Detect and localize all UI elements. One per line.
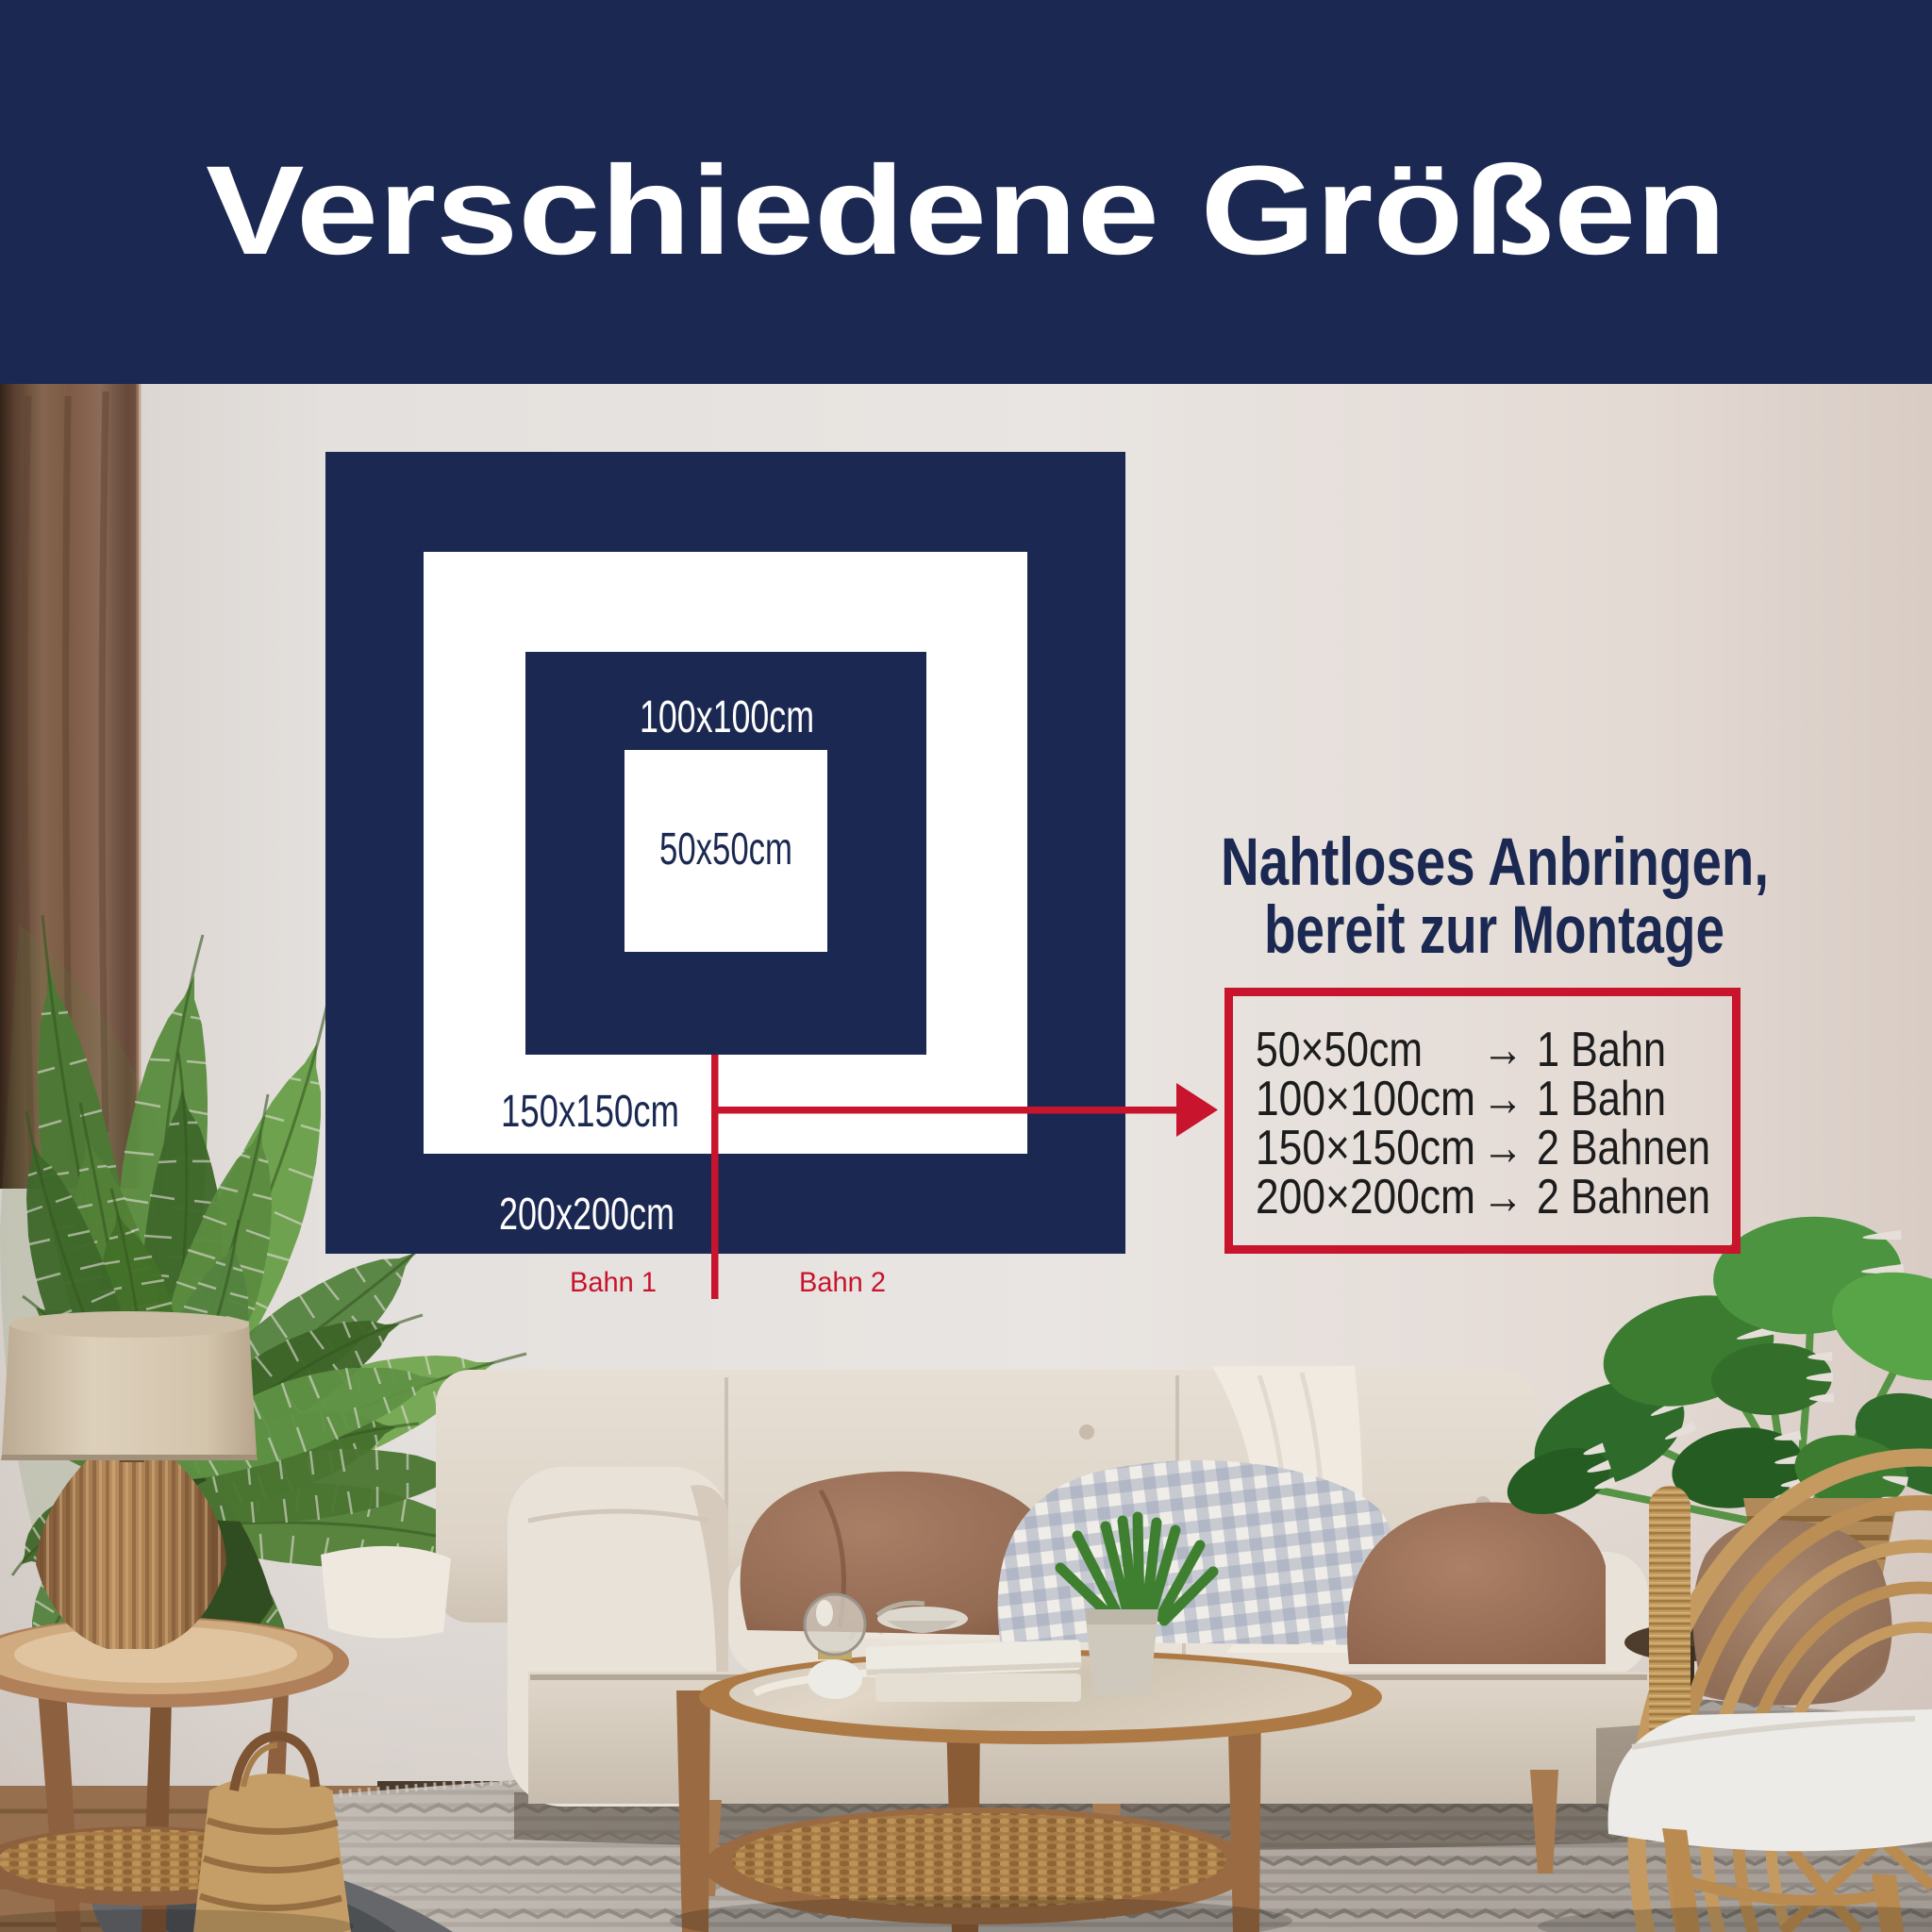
svg-text:→: → xyxy=(1482,1170,1524,1224)
svg-text:100x100cm: 100x100cm xyxy=(640,692,814,742)
svg-text:1 Bahn: 1 Bahn xyxy=(1537,1072,1666,1126)
svg-text:50×50cm: 50×50cm xyxy=(1256,1023,1423,1077)
svg-text:bereit zur Montage: bereit zur Montage xyxy=(1264,893,1724,968)
svg-text:150×150cm: 150×150cm xyxy=(1256,1121,1475,1175)
svg-text:100×100cm: 100×100cm xyxy=(1256,1072,1475,1126)
svg-text:→: → xyxy=(1482,1121,1524,1175)
svg-text:Verschiedene Größen: Verschiedene Größen xyxy=(206,141,1726,281)
svg-text:150x150cm: 150x150cm xyxy=(501,1087,679,1137)
svg-text:2 Bahnen: 2 Bahnen xyxy=(1537,1121,1710,1175)
svg-text:200x200cm: 200x200cm xyxy=(499,1190,675,1240)
svg-text:→: → xyxy=(1482,1072,1524,1126)
svg-text:200×200cm: 200×200cm xyxy=(1256,1170,1475,1224)
svg-text:Bahn 1: Bahn 1 xyxy=(570,1267,657,1298)
svg-text:Nahtloses Anbringen,: Nahtloses Anbringen, xyxy=(1221,825,1769,900)
svg-text:Bahn 2: Bahn 2 xyxy=(799,1267,886,1298)
svg-text:50x50cm: 50x50cm xyxy=(659,824,792,874)
svg-text:→: → xyxy=(1482,1023,1524,1077)
svg-text:1 Bahn: 1 Bahn xyxy=(1537,1023,1666,1077)
svg-text:2 Bahnen: 2 Bahnen xyxy=(1537,1170,1710,1224)
